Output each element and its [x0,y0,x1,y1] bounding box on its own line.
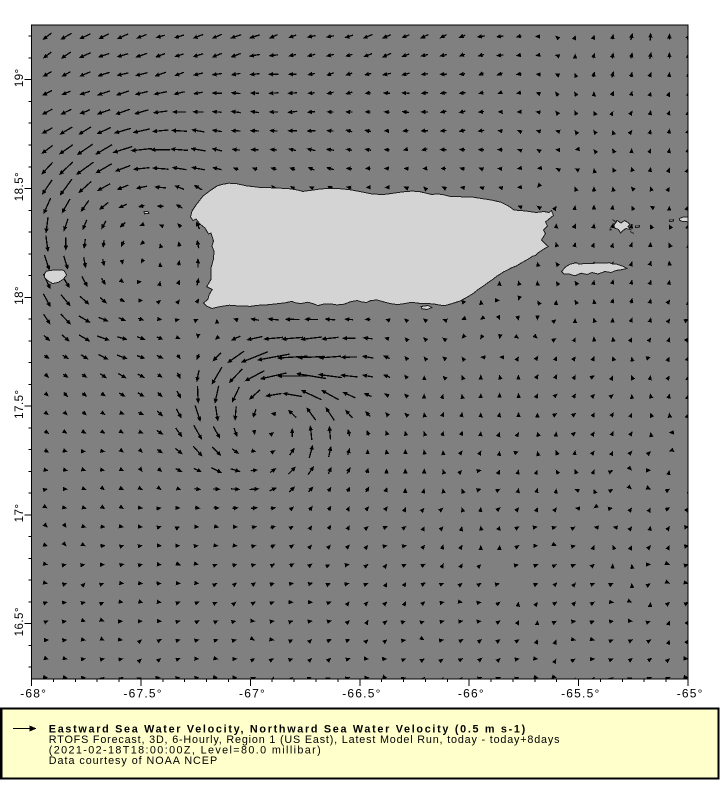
svg-text:-68°: -68° [20,687,47,701]
svg-text:18.5°: 18.5° [14,172,26,201]
svg-text:-67°: -67° [239,687,266,701]
svg-text:16.5°: 16.5° [14,607,26,636]
svg-text:18°: 18° [14,286,26,305]
svg-text:17.5°: 17.5° [14,389,26,418]
svg-text:-66.5°: -66.5° [342,687,381,701]
svg-text:19°: 19° [14,68,26,87]
svg-text:17°: 17° [14,503,26,522]
svg-text:-66°: -66° [458,687,485,701]
svg-text:-67.5°: -67.5° [123,687,162,701]
svg-text:-65°: -65° [677,687,704,701]
svg-text:Data courtesy of NOAA NCEP: Data courtesy of NOAA NCEP [49,755,218,767]
svg-text:-65.5°: -65.5° [561,687,600,701]
